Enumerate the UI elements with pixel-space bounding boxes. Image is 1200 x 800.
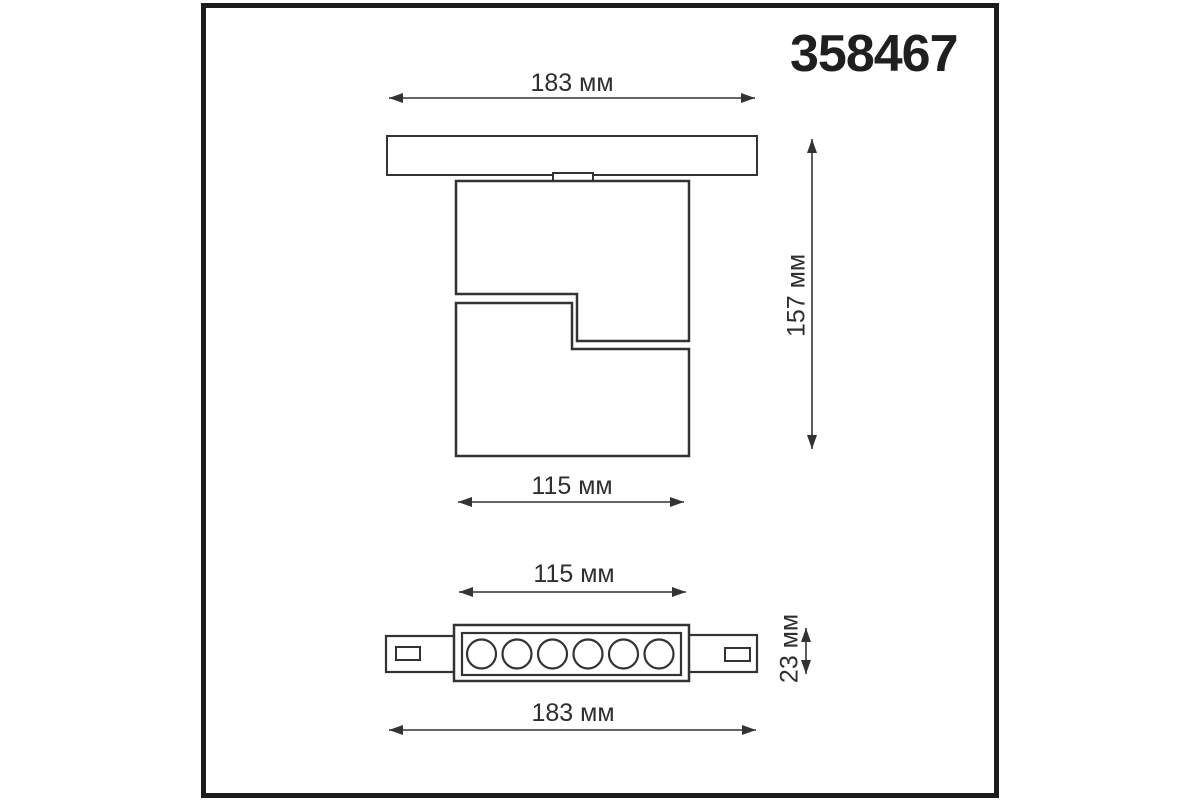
drawing-sheet: 358467 183 мм 157 мм 115 мм 115 мм 23 мм [0,0,1200,800]
led-lens-circle [503,640,532,669]
left-tab-hole [396,647,420,660]
dim-label-bottom-body-width: 115 мм [504,560,644,589]
dim-label-overall-length: 183 мм [503,699,643,728]
led-lens-circle [609,640,638,669]
dim-label-track-width: 183 мм [502,69,642,98]
dim-label-depth: 23 мм [776,579,805,719]
technical-drawing [0,0,1200,800]
dim-label-height: 157 мм [783,226,812,366]
led-lens-circle [645,640,674,669]
led-lens-circle [574,640,603,669]
dim-label-body-width: 115 мм [502,472,642,501]
led-lens-circle [467,640,496,669]
track-rail-outline [387,136,757,175]
led-lens-circle [538,640,567,669]
right-tab-hole [725,648,750,661]
